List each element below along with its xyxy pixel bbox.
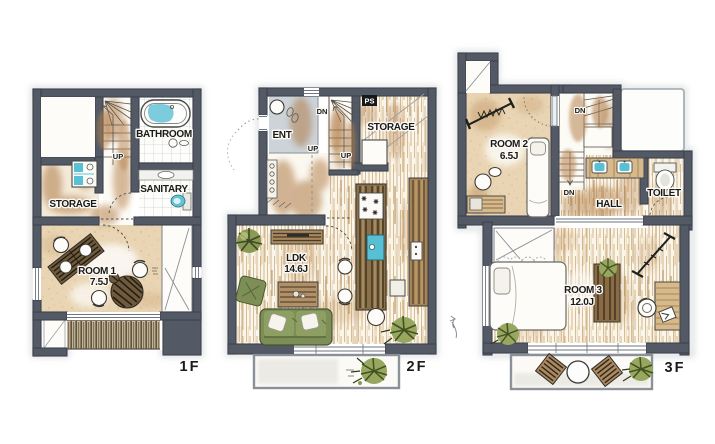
svg-text:TOILET: TOILET <box>647 188 681 199</box>
svg-text:LDK: LDK <box>286 253 307 264</box>
svg-text:6.5J: 6.5J <box>500 151 518 162</box>
svg-text:STORAGE: STORAGE <box>49 199 97 210</box>
svg-text:1F: 1F <box>180 359 201 375</box>
svg-text:DN: DN <box>575 106 586 115</box>
svg-text:UP: UP <box>113 152 123 161</box>
svg-text:ROOM 1: ROOM 1 <box>78 266 116 277</box>
svg-text:12.0J: 12.0J <box>570 297 594 308</box>
svg-text:ROOM 3: ROOM 3 <box>564 285 602 296</box>
svg-text:SANITARY: SANITARY <box>140 184 188 195</box>
svg-text:HALL: HALL <box>596 199 622 210</box>
svg-text:DN: DN <box>564 188 575 197</box>
svg-text:ROOM 2: ROOM 2 <box>490 139 528 150</box>
svg-text:UP: UP <box>308 144 318 153</box>
svg-text:UP: UP <box>341 151 351 160</box>
svg-text:DN: DN <box>317 107 328 116</box>
svg-text:3F: 3F <box>665 360 686 376</box>
svg-text:BATHROOM: BATHROOM <box>136 129 192 140</box>
svg-text:14.6J: 14.6J <box>284 264 308 275</box>
svg-text:STORAGE: STORAGE <box>367 122 415 133</box>
svg-text:ENT: ENT <box>272 130 291 141</box>
svg-text:2F: 2F <box>407 359 428 375</box>
svg-text:PS: PS <box>364 97 374 106</box>
svg-text:7.5J: 7.5J <box>90 277 108 288</box>
